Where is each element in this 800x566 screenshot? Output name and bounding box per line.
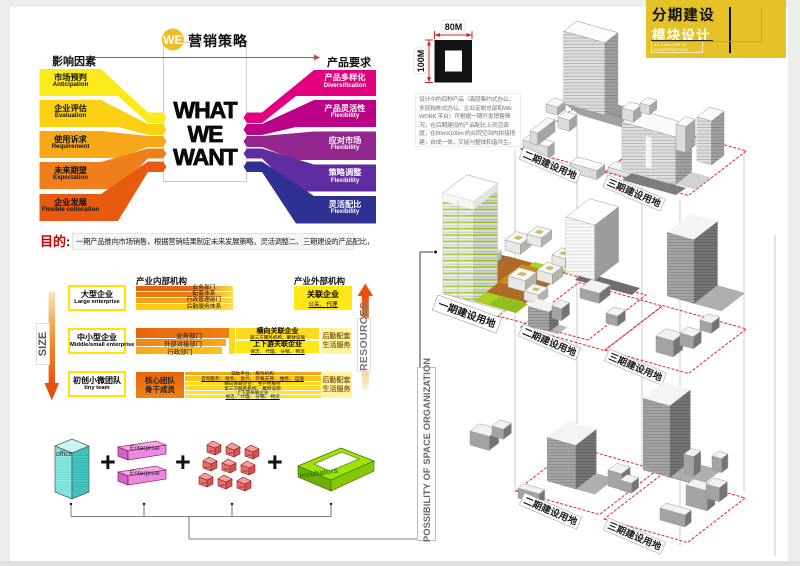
- svg-text:三期建设用地: 三期建设用地: [607, 351, 665, 385]
- svg-text:二期建设用地: 二期建设用地: [522, 495, 580, 529]
- svg-text:三期建设用地: 三期建设用地: [606, 520, 664, 554]
